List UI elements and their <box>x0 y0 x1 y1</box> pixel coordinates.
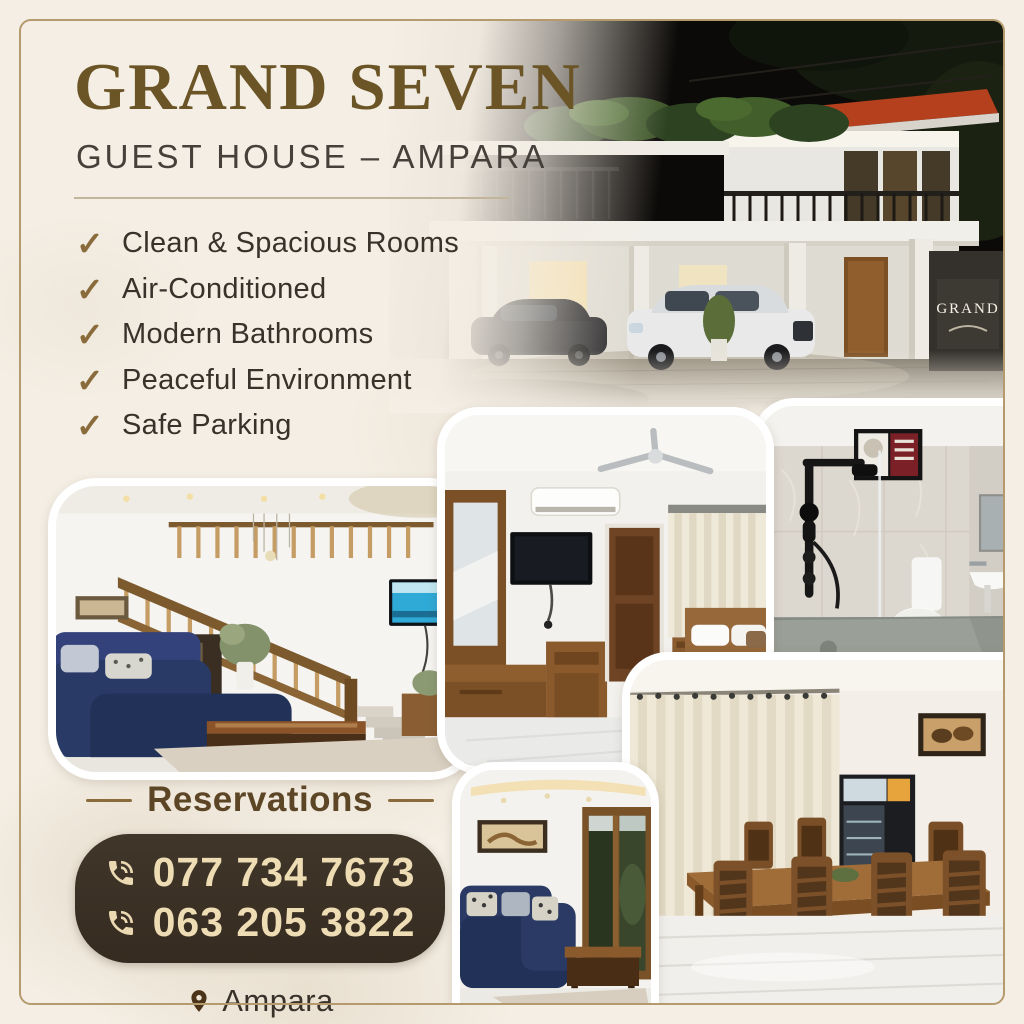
feature-item: ✓ Air-Conditioned <box>76 267 459 313</box>
feature-list: ✓ Clean & Spacious Rooms ✓ Air-Condition… <box>76 221 459 449</box>
phone-icon <box>105 857 137 889</box>
location-pin-icon <box>186 985 212 1017</box>
feature-label: Clean & Spacious Rooms <box>122 227 459 260</box>
reservations-section: Reservations 077 734 7673 063 205 3822 A <box>58 780 462 1019</box>
check-icon: ✓ <box>76 364 122 397</box>
location-row: Ampara <box>186 983 334 1019</box>
phone-number: 077 734 7673 <box>153 849 416 896</box>
feature-label: Air-Conditioned <box>122 273 326 306</box>
check-icon: ✓ <box>76 227 122 260</box>
photo-lounge-blue-sofa <box>452 762 659 1003</box>
photo-living-room-staircase <box>48 478 478 780</box>
feature-label: Safe Parking <box>122 409 292 442</box>
feature-label: Peaceful Environment <box>122 364 412 397</box>
check-icon: ✓ <box>76 273 122 306</box>
feature-item: ✓ Safe Parking <box>76 403 459 449</box>
phone-row: 077 734 7673 <box>105 849 416 896</box>
phone-icon <box>105 907 137 939</box>
header-divider <box>74 197 510 199</box>
reservations-heading: Reservations <box>147 780 373 820</box>
heading-dash-right <box>388 799 434 802</box>
photo-bathroom <box>752 398 1003 679</box>
staircase-living-illustration <box>56 486 470 772</box>
page-subtitle: GUEST HOUSE – AMPARA <box>76 138 582 176</box>
guest-house-flyer: GRAND <box>0 0 1024 1024</box>
reservations-heading-row: Reservations <box>86 780 434 820</box>
heading-dash-left <box>86 799 132 802</box>
phone-row: 063 205 3822 <box>105 899 416 946</box>
photo-dining-room <box>622 652 1003 1003</box>
bathroom-illustration <box>760 406 1003 671</box>
location-label: Ampara <box>222 983 334 1019</box>
feature-item: ✓ Modern Bathrooms <box>76 312 459 358</box>
brand-header: GRAND SEVEN GUEST HOUSE – AMPARA <box>74 52 582 176</box>
feature-label: Modern Bathrooms <box>122 318 373 351</box>
check-icon: ✓ <box>76 409 122 442</box>
feature-item: ✓ Clean & Spacious Rooms <box>76 221 459 267</box>
phone-number: 063 205 3822 <box>153 899 416 946</box>
feature-item: ✓ Peaceful Environment <box>76 358 459 404</box>
lounge-illustration <box>460 770 651 1003</box>
page-title: GRAND SEVEN <box>74 52 582 122</box>
phone-number-pill: 077 734 7673 063 205 3822 <box>75 834 446 963</box>
check-icon: ✓ <box>76 318 122 351</box>
grand-sign-text: GRAND <box>936 301 999 317</box>
dining-illustration <box>630 660 1003 1003</box>
